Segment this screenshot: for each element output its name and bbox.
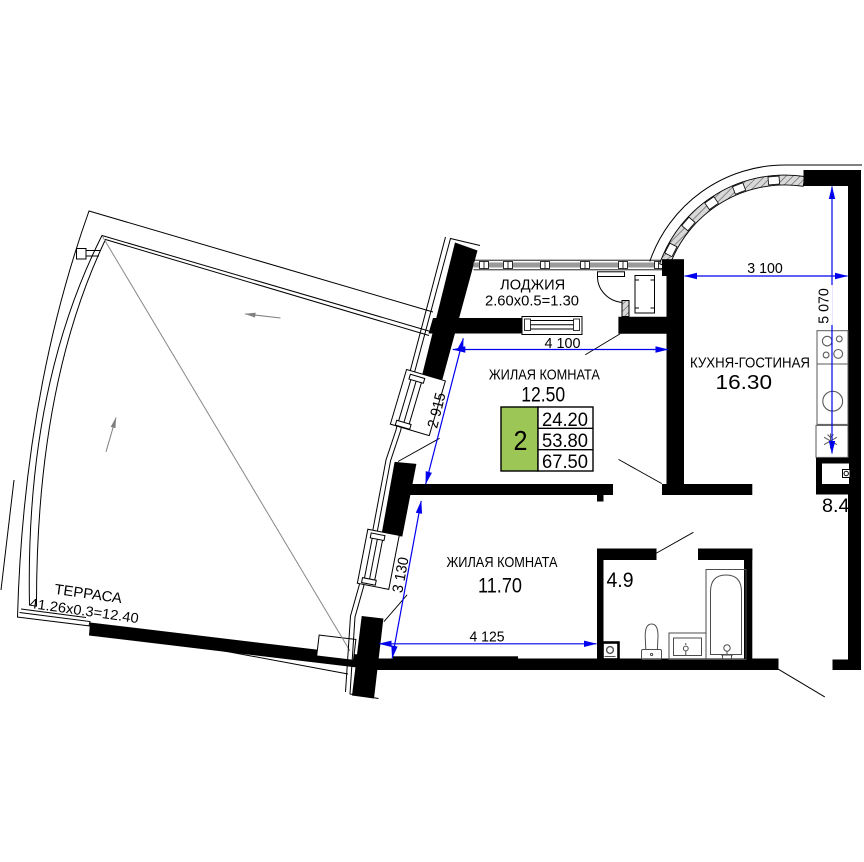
svg-text:12.50: 12.50 bbox=[521, 383, 565, 406]
svg-text:ЛОДЖИЯ: ЛОДЖИЯ bbox=[500, 278, 565, 294]
svg-text:4 125: 4 125 bbox=[470, 629, 505, 646]
svg-text:16.30: 16.30 bbox=[716, 372, 773, 394]
svg-text:5 070: 5 070 bbox=[816, 288, 833, 324]
svg-text:КУХНЯ-ГОСТИНАЯ: КУХНЯ-ГОСТИНАЯ bbox=[690, 356, 810, 372]
svg-text:8.4: 8.4 bbox=[822, 495, 850, 517]
svg-text:3 100: 3 100 bbox=[747, 260, 783, 277]
svg-text:2.60x0.5=1.30: 2.60x0.5=1.30 bbox=[485, 293, 579, 309]
svg-text:4.9: 4.9 bbox=[607, 569, 634, 592]
svg-text:ЖИЛАЯ КОМНАТА: ЖИЛАЯ КОМНАТА bbox=[447, 555, 558, 571]
svg-text:11.70: 11.70 bbox=[478, 575, 522, 598]
svg-text:24.20: 24.20 bbox=[542, 410, 588, 431]
svg-text:ЖИЛАЯ КОМНАТА: ЖИЛАЯ КОМНАТА bbox=[489, 368, 600, 384]
svg-text:53.80: 53.80 bbox=[542, 431, 588, 452]
svg-text:2: 2 bbox=[514, 425, 528, 456]
svg-text:4 100: 4 100 bbox=[545, 335, 581, 352]
svg-text:67.50: 67.50 bbox=[542, 452, 588, 473]
